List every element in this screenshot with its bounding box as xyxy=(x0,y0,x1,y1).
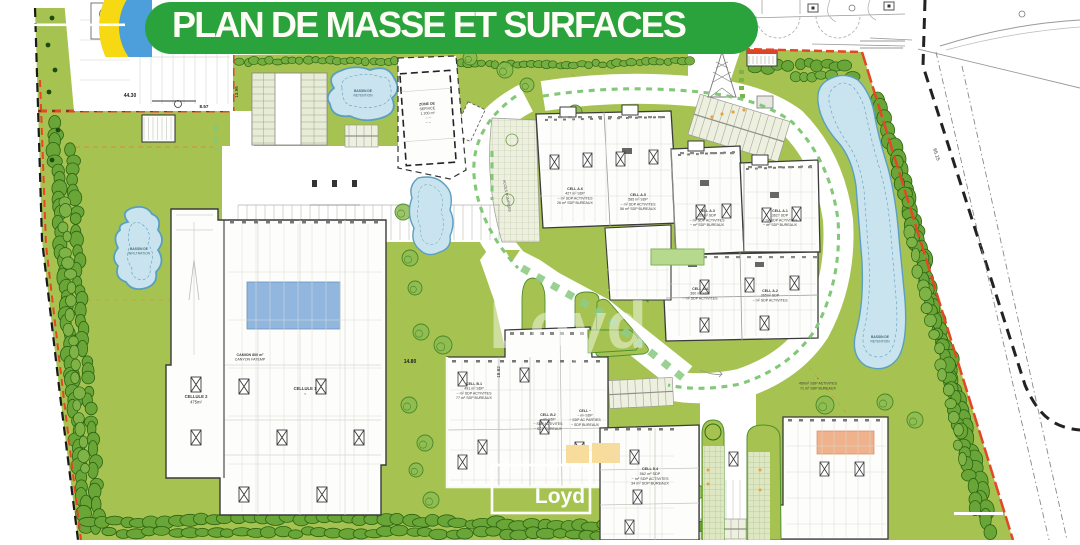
svg-text:Loyd: Loyd xyxy=(535,485,585,508)
svg-text:44.30: 44.30 xyxy=(124,93,137,99)
svg-text:CAMION 800 m²CANYON FATEMP: CAMION 800 m²CANYON FATEMP xyxy=(235,353,266,362)
svg-text:BASSIN DERETENTION: BASSIN DERETENTION xyxy=(870,335,890,343)
svg-text:PLAN DE MASSE ET SURFACES: PLAN DE MASSE ET SURFACES xyxy=(172,4,686,45)
svg-text:8.57: 8.57 xyxy=(200,104,209,109)
svg-text:14.80: 14.80 xyxy=(404,359,417,365)
svg-text:18.82: 18.82 xyxy=(496,366,501,378)
svg-text:13.96: 13.96 xyxy=(234,86,239,98)
svg-text:Loyd: Loyd xyxy=(489,288,647,362)
svg-text:BASSIN DEINFILTRATION: BASSIN DEINFILTRATION xyxy=(128,247,151,255)
svg-text:BASSIN DERETENTION: BASSIN DERETENTION xyxy=(353,89,373,97)
